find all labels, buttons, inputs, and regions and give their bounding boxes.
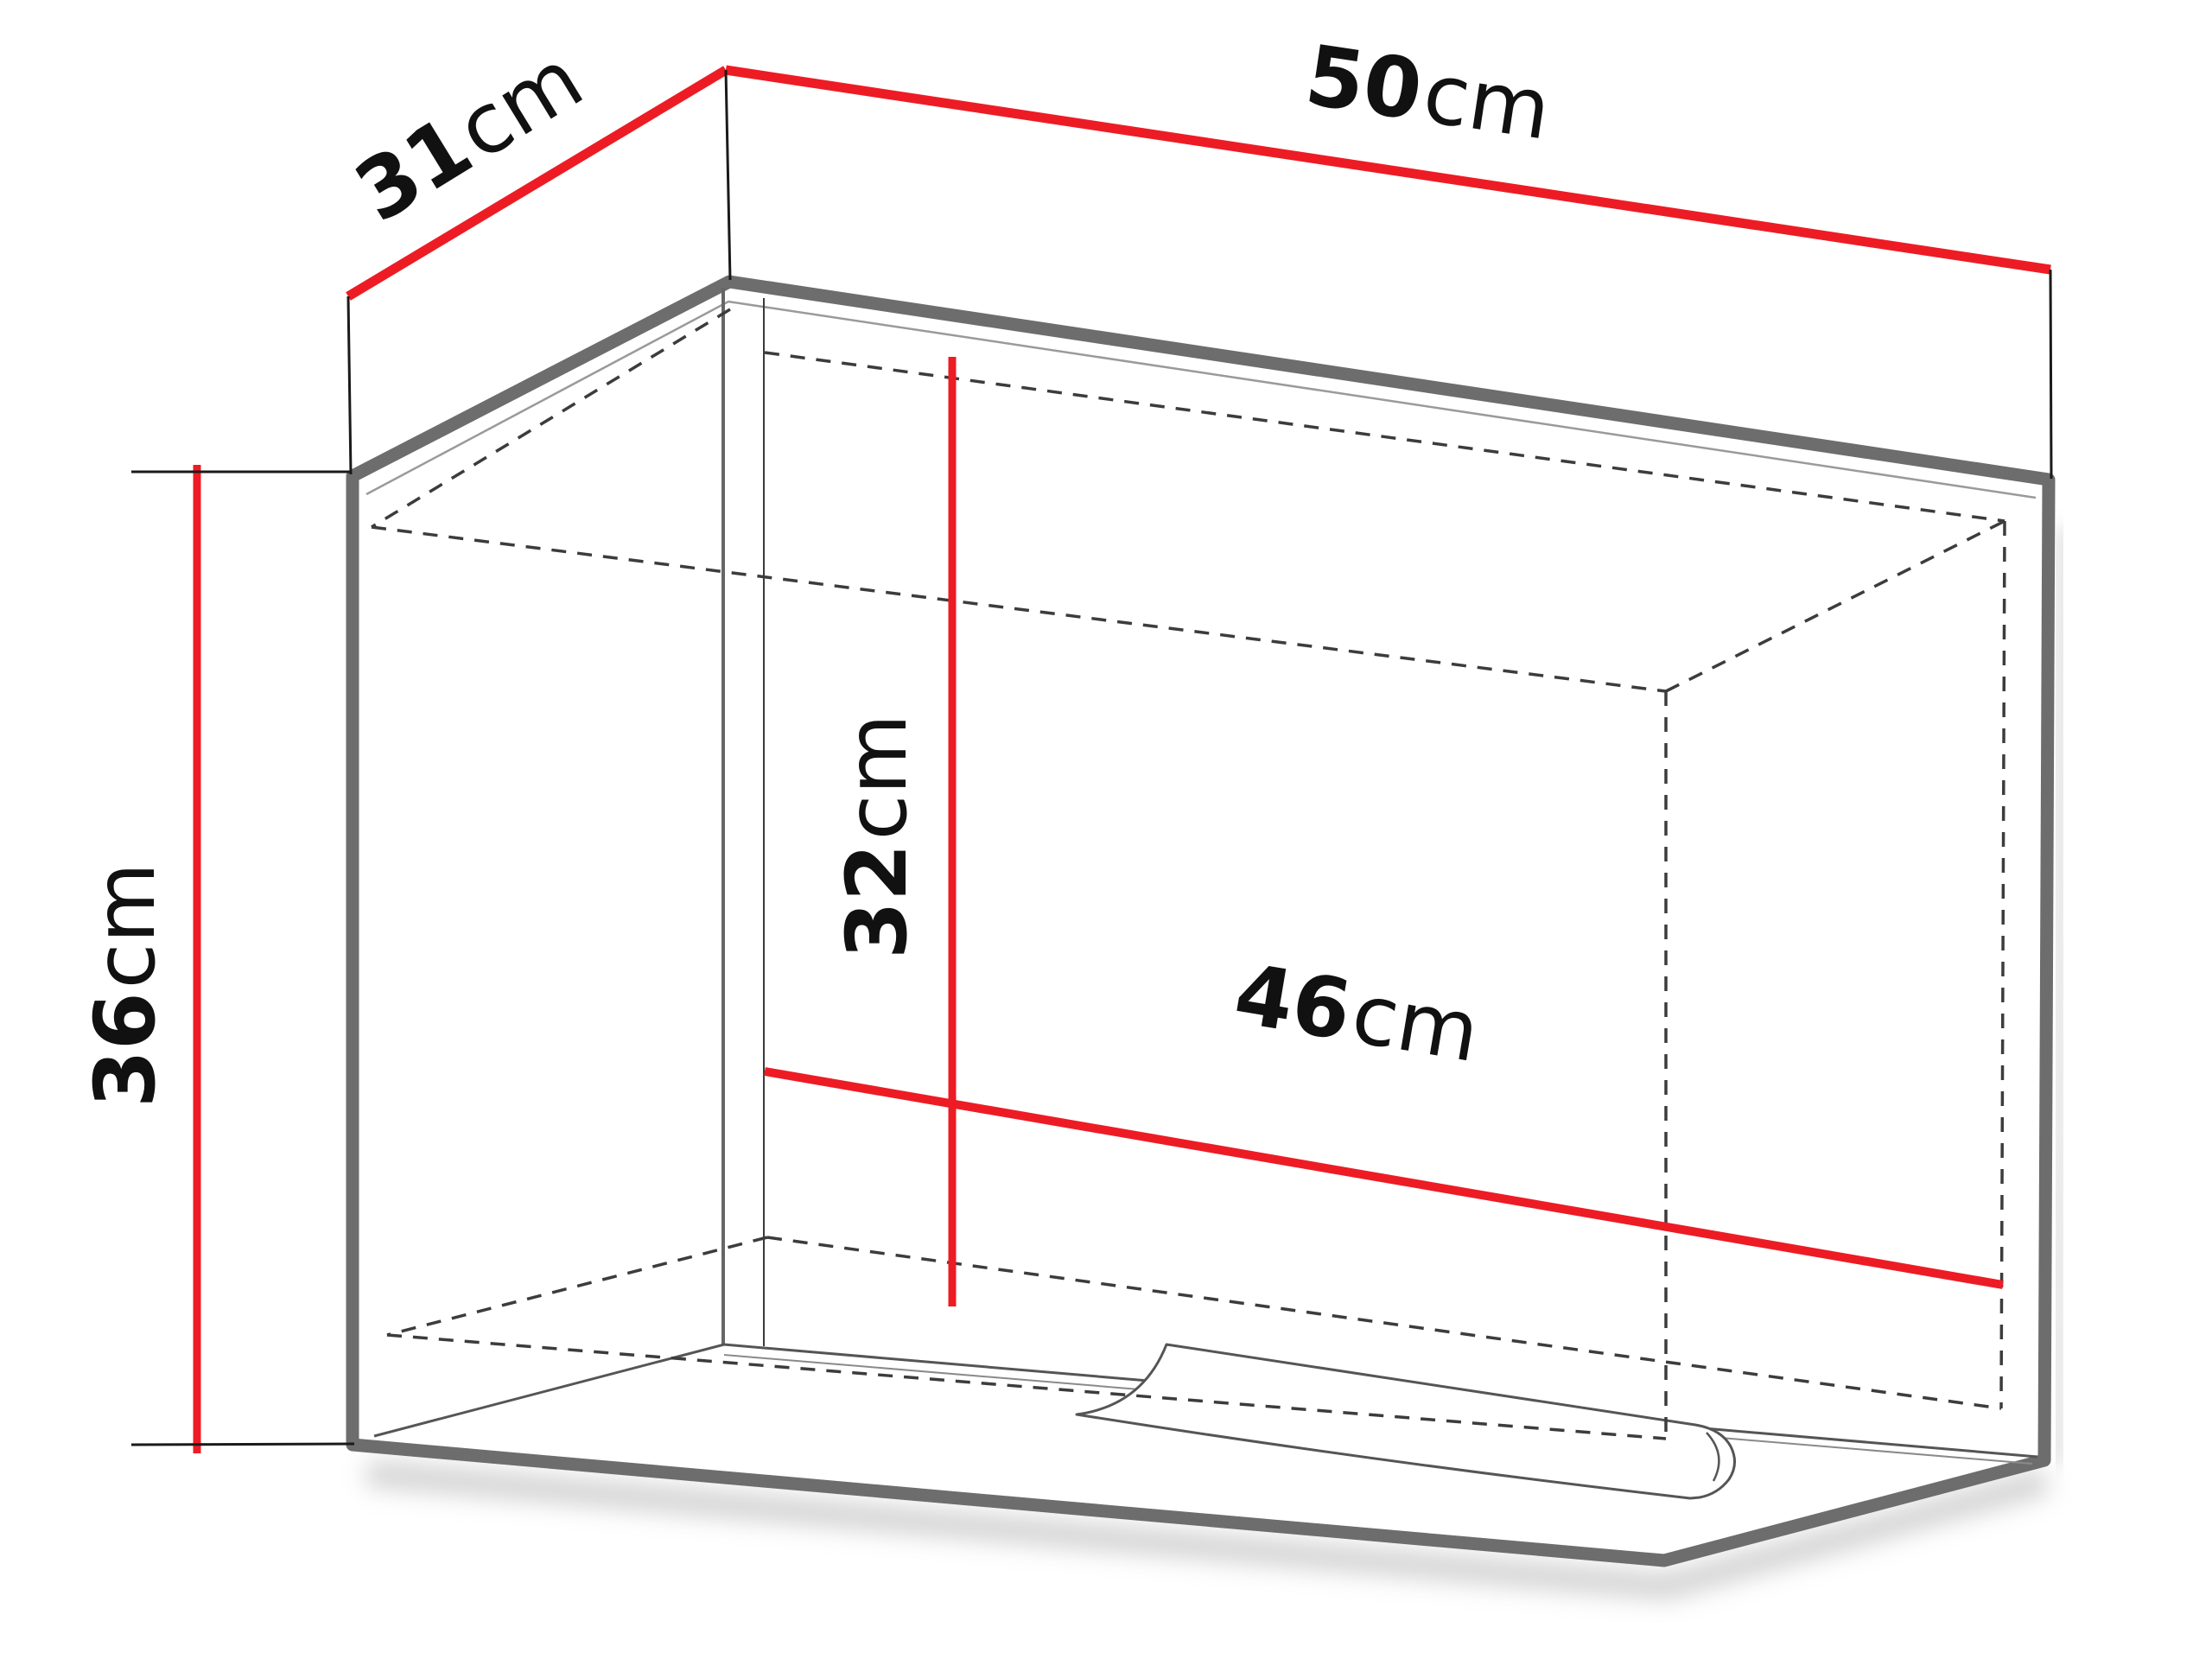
extension-line-right-top [2050, 270, 2051, 479]
extension-line-left-top [348, 296, 351, 474]
label-height-36cm: 36cm [77, 862, 174, 1108]
label-inner-height-32cm: 32cm [829, 714, 925, 959]
shadow-right [2057, 527, 2062, 1465]
extension-line-top-apex [726, 70, 730, 280]
label-depth-31cm: 31cm [339, 30, 599, 241]
dimension-diagram: 50cm 31cm 36cm 32cm 46cm [0, 0, 2212, 1659]
cabinet-dimension-drawing: 50cm 31cm 36cm 32cm 46cm [0, 0, 2212, 1659]
extension-line-height-bottom [131, 1444, 354, 1445]
label-width-50cm: 50cm [1300, 27, 1556, 159]
